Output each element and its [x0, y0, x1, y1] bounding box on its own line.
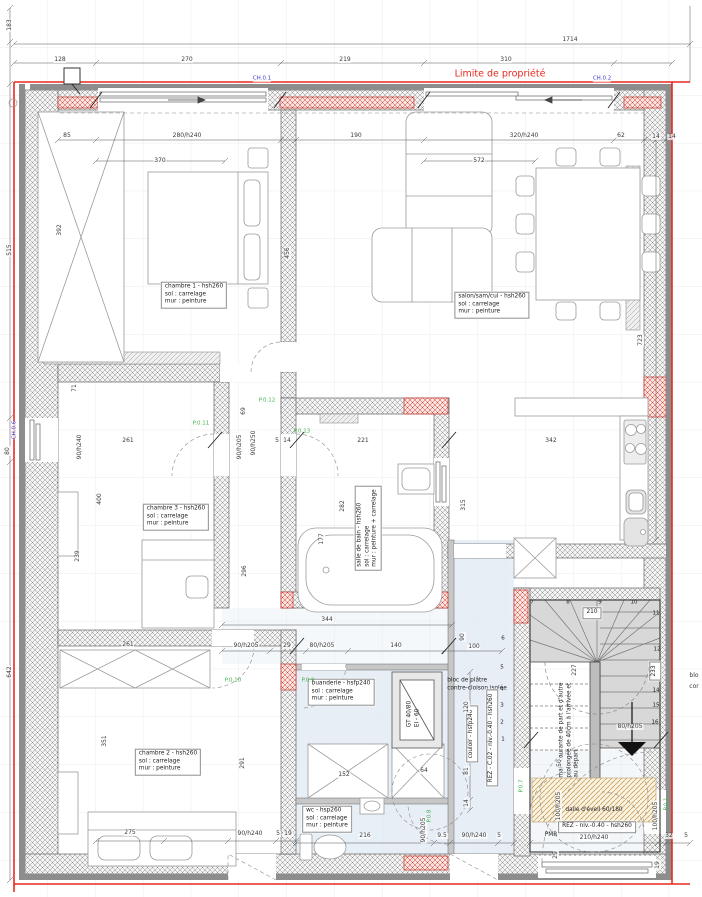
dining-table-icon: [516, 148, 660, 320]
laundry-machines-icon: [308, 744, 444, 798]
chimney-marker: [64, 68, 80, 84]
wardrobe-chambre2-icon: [60, 650, 210, 688]
property-limit-label: Limite de propriété: [455, 69, 546, 80]
duct-gt-icon: [392, 672, 442, 748]
wc-basin-icon: [360, 798, 384, 814]
bathtub-icon: [298, 528, 442, 612]
toilet-icon: [300, 834, 346, 860]
floor-plan: chambre 1 - hsh260sol : carrelagemur : p…: [0, 0, 702, 897]
floor-plan-drawing: [0, 0, 702, 897]
dalle-eveil-hatch: [532, 778, 656, 822]
washbasin-icon: [398, 464, 434, 494]
wardrobe-chambre1-icon: [38, 112, 124, 362]
bed-chambre1-icon: [148, 148, 268, 308]
